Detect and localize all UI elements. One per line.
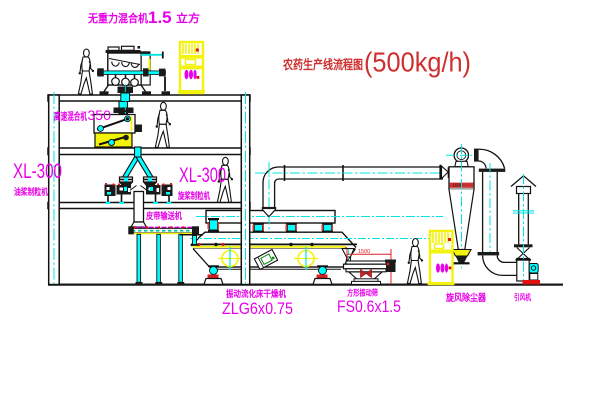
svg-text:农药生产线流程图: 农药生产线流程图 [282, 57, 363, 72]
svg-text:振动流化床干燥机: 振动流化床干燥机 [226, 288, 286, 299]
svg-text:(500kg/h): (500kg/h) [364, 47, 471, 78]
svg-text:旋桨制粒机: 旋桨制粒机 [177, 190, 210, 201]
svg-text:FS0.6x1.5: FS0.6x1.5 [337, 297, 401, 316]
svg-text:XL-300: XL-300 [179, 164, 226, 187]
svg-text:XL-300: XL-300 [13, 160, 62, 183]
svg-text:皮带输送机: 皮带输送机 [145, 210, 182, 221]
svg-text:引风机: 引风机 [514, 292, 531, 302]
svg-text:旋风除尘器: 旋风除尘器 [445, 292, 486, 304]
svg-text:ZLG6x0.75: ZLG6x0.75 [222, 299, 293, 318]
svg-text:油桨制粒机: 油桨制粒机 [14, 186, 48, 197]
svg-text:方形振动筛: 方形振动筛 [347, 288, 378, 298]
svg-text:1500: 1500 [358, 249, 370, 255]
